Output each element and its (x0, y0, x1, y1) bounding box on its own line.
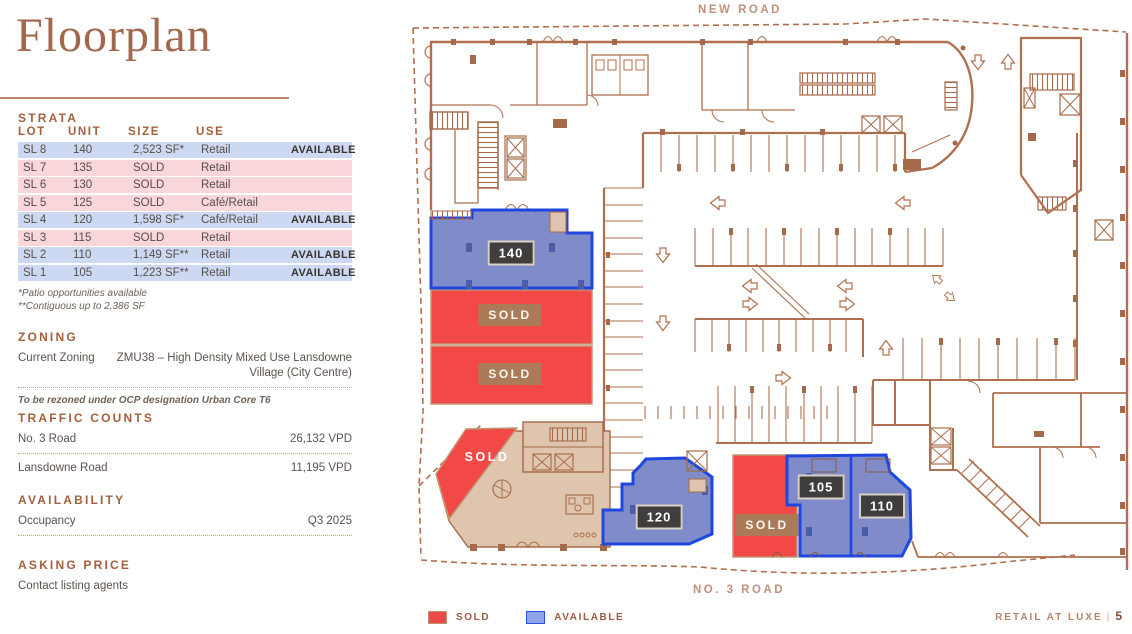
unit-110-tag: 110 (859, 494, 905, 519)
strata-heading: STRATA (18, 111, 352, 125)
legend-available-label: AVAILABLE (554, 612, 624, 623)
table-row: SL 3115 SOLDRetail (18, 230, 352, 246)
table-row: SL 1105 1,223 SF**Retail AVAILABLE (18, 265, 352, 281)
traffic-vpd-1: 26,132 VPD (290, 432, 352, 447)
page-title: Floorplan (16, 8, 212, 63)
new-road-label: NEW ROAD (665, 4, 815, 16)
unit-125-sold-tag: SOLD (465, 450, 510, 464)
no-3-road-label: NO. 3 ROAD (664, 584, 814, 596)
zoning-heading: ZONING (18, 330, 352, 344)
table-row: SL 8140 2,523 SF*Retail AVAILABLE (18, 142, 352, 158)
traffic-heading: TRAFFIC COUNTS (18, 411, 352, 425)
status-badge: AVAILABLE (279, 214, 356, 226)
table-row: SL 7135 SOLDRetail (18, 160, 352, 176)
table-row: SL 2110 1,149 SF**Retail AVAILABLE (18, 247, 352, 263)
rezoning-note: To be rezoned under OCP designation Urba… (18, 395, 352, 406)
building-walls (425, 37, 972, 211)
asking-price-value: Contact listing agents (18, 580, 352, 592)
table-row: SL 5125 SOLDCafé/Retail (18, 195, 352, 211)
zoning-value-line1: ZMU38 – High Density Mixed Use Lansdowne (117, 351, 352, 366)
unit-105-tag: 105 (798, 475, 845, 500)
unit-120-tag: 120 (636, 505, 683, 530)
traffic-road-1: No. 3 Road (18, 432, 76, 447)
zoning-value-line2: Village (City Centre) (117, 366, 352, 381)
floorplan-drawing (400, 0, 1132, 600)
occupancy-value: Q3 2025 (308, 514, 352, 529)
unit-140-tag: 140 (488, 241, 535, 266)
strata-table: STRATA LOT UNIT SIZE USE SL 8140 2,523 S… (18, 111, 352, 313)
table-row: SL 6130 SOLDRetail (18, 177, 352, 193)
availability-heading: AVAILABILITY (18, 493, 352, 507)
divider (18, 453, 352, 454)
table-row: SL 4120 1,598 SF*Café/Retail AVAILABLE (18, 212, 352, 228)
col-size: SIZE (128, 126, 196, 138)
col-lot: LOT (18, 126, 68, 138)
direction-arrows (657, 55, 1015, 385)
page-number: 5 (1115, 609, 1122, 623)
right-side-structures (1021, 33, 1127, 570)
asking-price-section: ASKING PRICE Contact listing agents (18, 558, 352, 592)
asking-price-heading: ASKING PRICE (18, 558, 352, 572)
plan-legend: SOLD AVAILABLE (428, 611, 624, 624)
zoning-section: ZONING Current Zoning ZMU38 – High Densi… (18, 330, 352, 406)
footnote-patio: *Patio opportunities available (18, 287, 352, 300)
divider (18, 387, 352, 388)
unit-135-sold-tag: SOLD (478, 304, 541, 326)
status-badge: AVAILABLE (279, 144, 356, 156)
traffic-counts-section: TRAFFIC COUNTS No. 3 Road 26,132 VPD Lan… (18, 411, 352, 476)
footnote-contiguous: **Contiguous up to 2,386 SF (18, 300, 352, 313)
col-unit: UNIT (68, 126, 128, 138)
zoning-label: Current Zoning (18, 351, 95, 381)
col-use: USE (196, 126, 274, 138)
strata-header-row: LOT UNIT SIZE USE (18, 126, 352, 138)
availability-section: AVAILABILITY Occupancy Q3 2025 (18, 493, 352, 536)
occupancy-label: Occupancy (18, 514, 76, 529)
traffic-road-2: Lansdowne Road (18, 461, 108, 476)
status-badge: AVAILABLE (279, 249, 356, 261)
divider (18, 535, 352, 536)
brand-name: RETAIL AT LUXE (995, 612, 1103, 623)
footer-separator: | (1103, 612, 1116, 623)
unit-130-sold-tag: SOLD (478, 363, 541, 385)
traffic-vpd-2: 11,195 VPD (291, 461, 352, 476)
legend-sold-label: SOLD (456, 612, 490, 623)
status-badge: AVAILABLE (279, 267, 356, 279)
page-footer: RETAIL AT LUXE|5 (995, 609, 1122, 623)
title-rule (0, 97, 289, 99)
unit-115-sold-tag: SOLD (735, 514, 798, 536)
available-swatch-icon (526, 611, 545, 624)
sold-swatch-icon (428, 611, 447, 624)
